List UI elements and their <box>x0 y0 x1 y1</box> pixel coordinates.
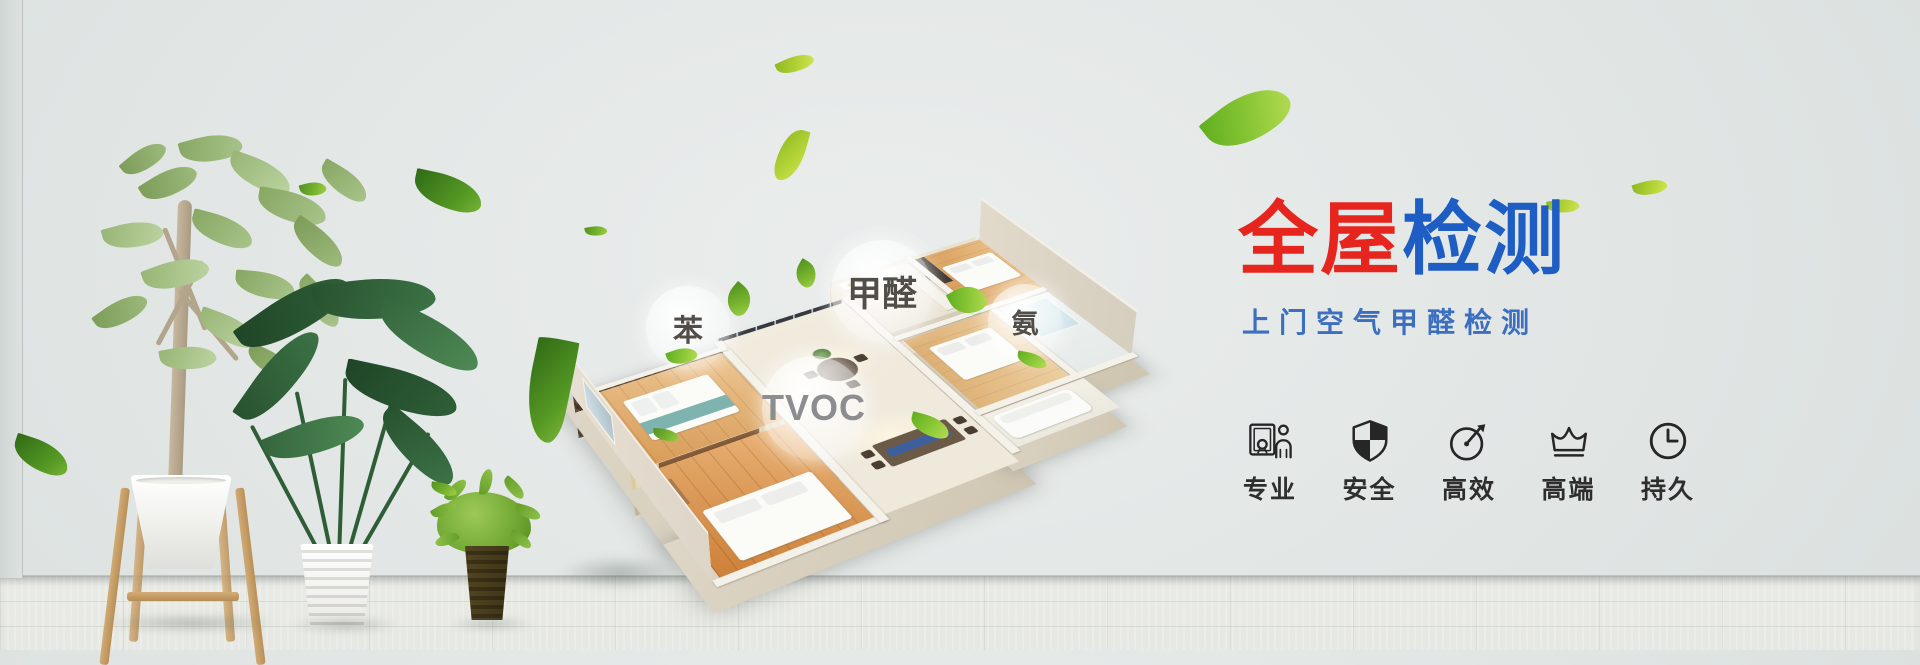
pollutant-label: 氨 <box>1012 302 1039 341</box>
title-red-part: 全屋 <box>1238 195 1402 284</box>
bronze-ribbed-pot <box>463 546 511 620</box>
fig-leaf <box>101 215 166 256</box>
small-potted-bush <box>435 482 540 627</box>
feature-label: 专业 <box>1243 470 1297 506</box>
feature-safe: 安全 <box>1328 418 1412 506</box>
gauge-arrow-icon <box>1446 418 1492 464</box>
certificate-person-icon <box>1247 418 1293 464</box>
pollutant-bubble-tvoc: TVOC <box>762 356 866 460</box>
strelitzia-leaf <box>370 296 488 378</box>
floating-leaf <box>1632 175 1669 200</box>
pillow <box>936 341 967 356</box>
house-3d-model <box>540 140 1200 610</box>
pollutant-label: 甲醛 <box>847 266 917 317</box>
feature-label: 安全 <box>1342 470 1396 506</box>
strelitzia-leaf <box>260 402 367 472</box>
pillow <box>971 256 996 267</box>
bush-foliage <box>437 492 531 554</box>
crown-icon <box>1546 418 1592 464</box>
feature-label: 高端 <box>1541 470 1595 506</box>
left-wall-corner <box>0 0 23 578</box>
feature-label: 持久 <box>1641 470 1695 506</box>
feature-efficient: 高效 <box>1427 418 1511 506</box>
feature-list: 专业 安全 高效 高端 持久 <box>1228 418 1710 506</box>
plant-stem <box>337 378 347 558</box>
floating-leaf <box>1199 72 1298 164</box>
pillow <box>948 263 973 274</box>
floating-leaf <box>410 168 486 216</box>
pollutant-label: 苯 <box>673 306 703 350</box>
fig-leaf <box>158 341 217 374</box>
plant-shadow <box>290 618 400 632</box>
shield-icon <box>1347 418 1393 464</box>
bush-leaf <box>479 469 493 496</box>
feature-highend: 高端 <box>1527 418 1611 506</box>
fig-leaf <box>315 158 374 206</box>
fig-leaf <box>91 286 151 338</box>
title-blue-part: 检测 <box>1402 195 1566 284</box>
feature-lasting: 持久 <box>1626 418 1710 506</box>
clock-icon <box>1645 418 1691 464</box>
pillow <box>963 332 994 347</box>
white-ribbed-pot <box>299 544 375 628</box>
floating-leaf <box>774 49 815 80</box>
plant-shadow <box>448 618 534 630</box>
feature-professional: 专业 <box>1228 418 1312 506</box>
strelitzia-leaf <box>370 403 465 491</box>
white-pot <box>130 475 232 569</box>
feature-label: 高效 <box>1442 470 1496 506</box>
plant-stand-rail <box>127 592 239 601</box>
pollutant-label: TVOC <box>762 387 866 429</box>
strelitzia-potted-plant <box>225 278 460 633</box>
fig-leaf <box>187 208 256 252</box>
pollutant-bubble-ammonia: 氨 <box>988 284 1062 358</box>
pollutant-bubble-formaldehyde: 甲醛 <box>831 240 933 342</box>
page-title: 全屋检测 <box>1238 200 1566 280</box>
page-subtitle: 上门空气甲醛检测 <box>1242 301 1538 341</box>
